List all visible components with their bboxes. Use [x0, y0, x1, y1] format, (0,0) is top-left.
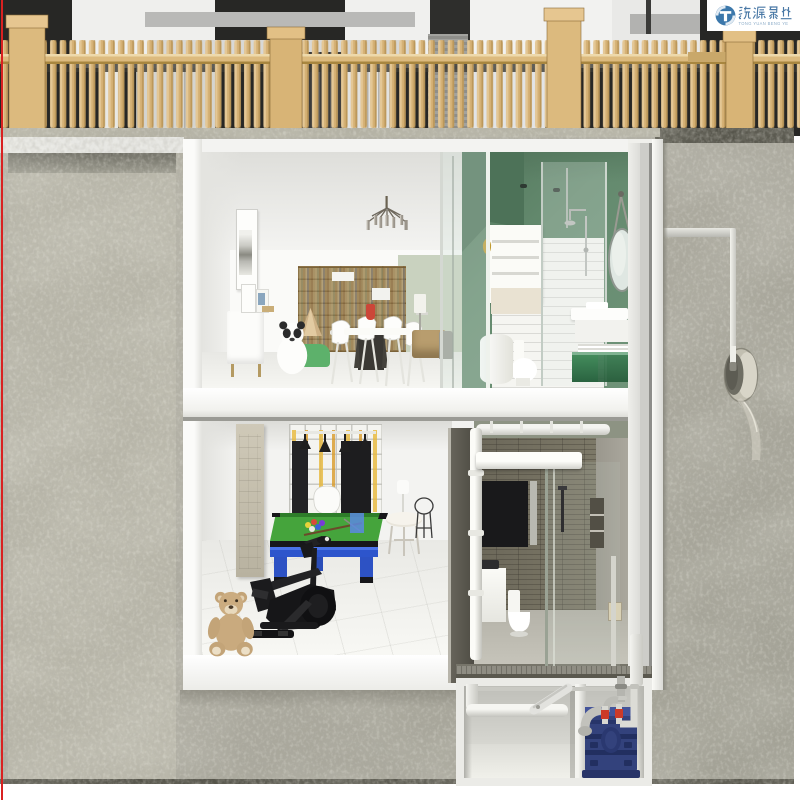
svg-text:TONG YUAN BENG YE: TONG YUAN BENG YE: [739, 21, 789, 26]
